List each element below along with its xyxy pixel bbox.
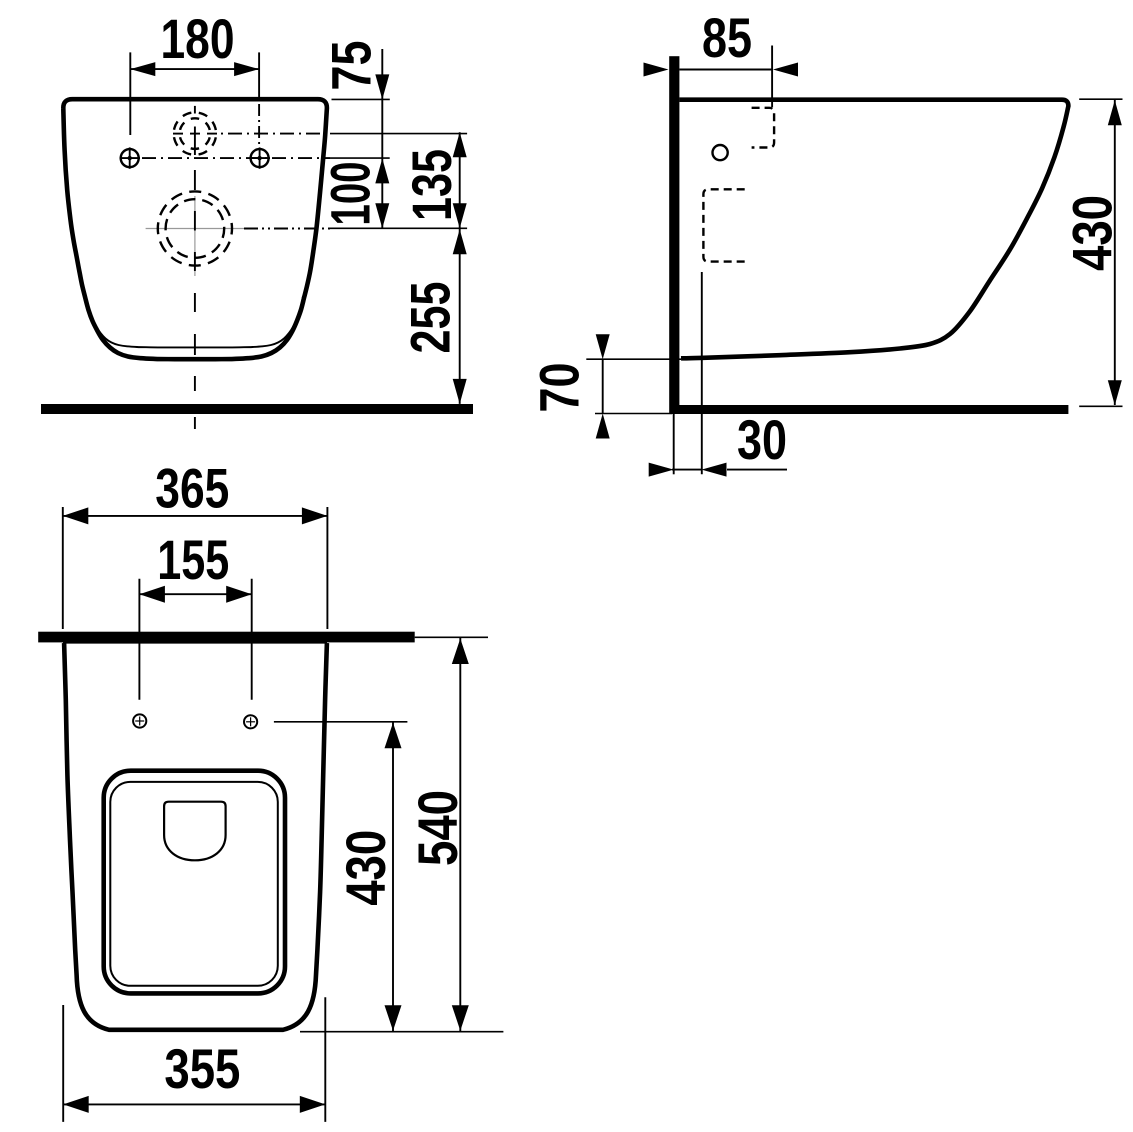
svg-text:30: 30 [737,408,787,471]
svg-text:155: 155 [157,528,229,591]
svg-text:180: 180 [161,7,235,70]
svg-text:135: 135 [400,149,463,221]
svg-text:355: 355 [164,1037,240,1100]
svg-text:70: 70 [527,363,590,413]
svg-text:430: 430 [1061,195,1124,271]
svg-text:255: 255 [398,282,461,354]
svg-text:430: 430 [334,830,397,906]
svg-text:75: 75 [319,41,382,91]
svg-text:100: 100 [319,162,382,226]
svg-text:85: 85 [702,6,752,69]
svg-text:540: 540 [406,790,469,866]
svg-text:365: 365 [155,457,229,520]
